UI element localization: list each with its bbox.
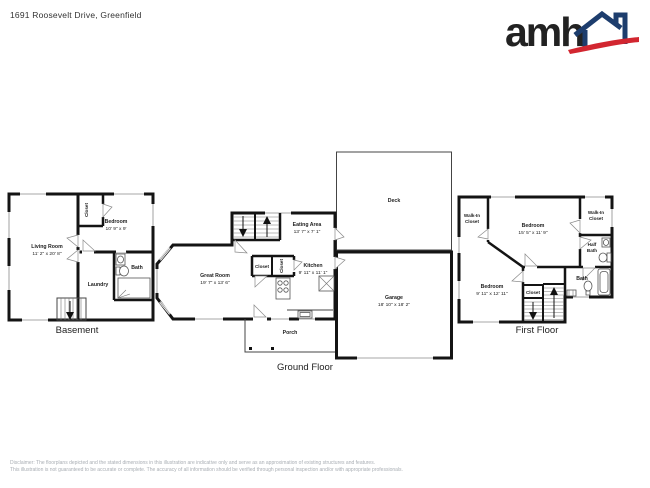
room-label: Great Room xyxy=(200,273,230,279)
room-dims: 11' 2" x 20' 8" xyxy=(32,251,61,257)
room-dims: 19' 7" x 13' 6" xyxy=(200,280,230,286)
room-dims: 15' 5" x 11' 9" xyxy=(518,230,547,236)
room-label: Walk-In xyxy=(464,213,480,218)
disclaimer-line-1: Disclaimer: The floorplans depicted and … xyxy=(10,460,645,467)
room-label: Bath xyxy=(576,276,588,282)
basement-plan: Living Room 11' 2" x 20' 8" Bedroom 10' … xyxy=(6,190,158,330)
room-dims: 13' 7" x 7' 1" xyxy=(294,229,321,235)
room-dims: 9' 11" x 12' 11" xyxy=(476,291,508,297)
room-label: Bedroom xyxy=(522,223,545,229)
room-label: Kitchen xyxy=(303,263,322,269)
room-label: Walk-In xyxy=(588,210,604,215)
disclaimer: Disclaimer: The floorplans depicted and … xyxy=(10,460,645,473)
floorplan-page: 1691 Roosevelt Drive, Greenfield amh xyxy=(0,0,650,488)
amh-logo: amh xyxy=(505,6,645,54)
disclaimer-line-2: This illustration is not guaranteed to b… xyxy=(10,467,645,474)
room-label: Closet xyxy=(526,290,541,295)
room-label: Closet xyxy=(255,264,270,269)
room-label: Bath xyxy=(587,248,597,253)
pedestal-sink-icon xyxy=(584,281,592,291)
room-label: Closet xyxy=(279,259,284,274)
toilet-icon xyxy=(599,253,607,262)
room-label: Living Room xyxy=(31,244,63,250)
room-label: Closet xyxy=(84,203,89,218)
ground-floor-plan: Deck Eating Area 13' 7" x 7' 1" Great Ro… xyxy=(147,141,459,365)
room-label: Deck xyxy=(388,198,401,204)
room-label: Half xyxy=(588,242,597,247)
room-dims: 9' 11" x 11' 1" xyxy=(299,270,328,276)
basement-floor-label: Basement xyxy=(12,325,142,336)
room-label: Closet xyxy=(465,219,480,224)
room-label: Closet xyxy=(589,216,604,221)
shower-icon xyxy=(118,278,150,298)
room-label: Garage xyxy=(385,295,403,301)
room-label: Eating Area xyxy=(293,222,322,228)
ground-floor-label: Ground Floor xyxy=(240,362,370,373)
room-label: Bedroom xyxy=(105,219,128,225)
room-label: Bath xyxy=(131,265,143,271)
room-label: Porch xyxy=(283,330,298,336)
room-label: Laundry xyxy=(88,282,109,288)
first-floor-label: First Floor xyxy=(472,325,602,336)
room-dims: 10' 9" x 9' xyxy=(105,226,126,232)
room-label: Bedroom xyxy=(481,284,504,290)
logo-wordmark: amh xyxy=(505,9,583,54)
first-floor-plan: Walk-In Closet Bedroom 15' 5" x 11' 9" W… xyxy=(455,193,615,325)
room-dims: 18' 10" x 18' 2" xyxy=(378,302,411,308)
property-address: 1691 Roosevelt Drive, Greenfield xyxy=(10,10,142,20)
